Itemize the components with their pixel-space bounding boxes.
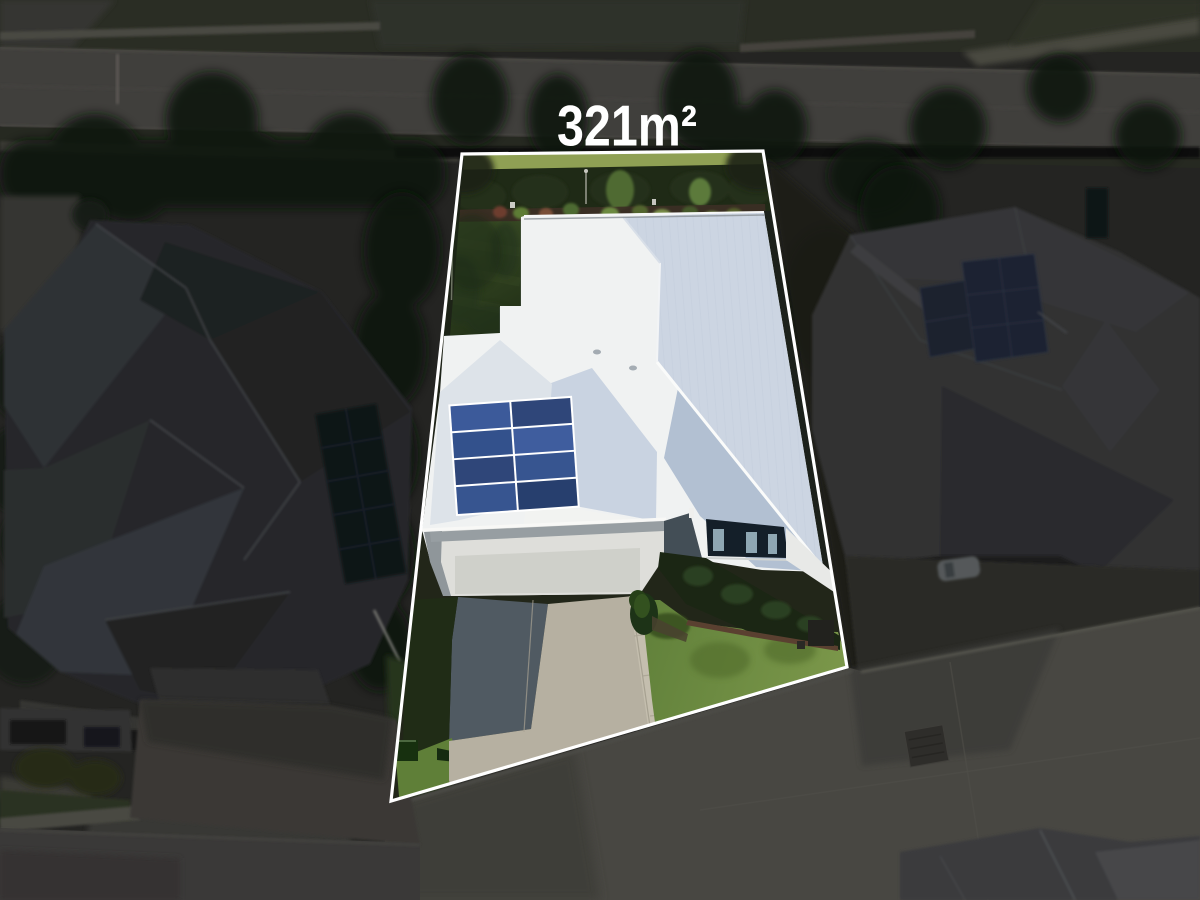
svg-text:321m²: 321m² <box>557 95 697 159</box>
